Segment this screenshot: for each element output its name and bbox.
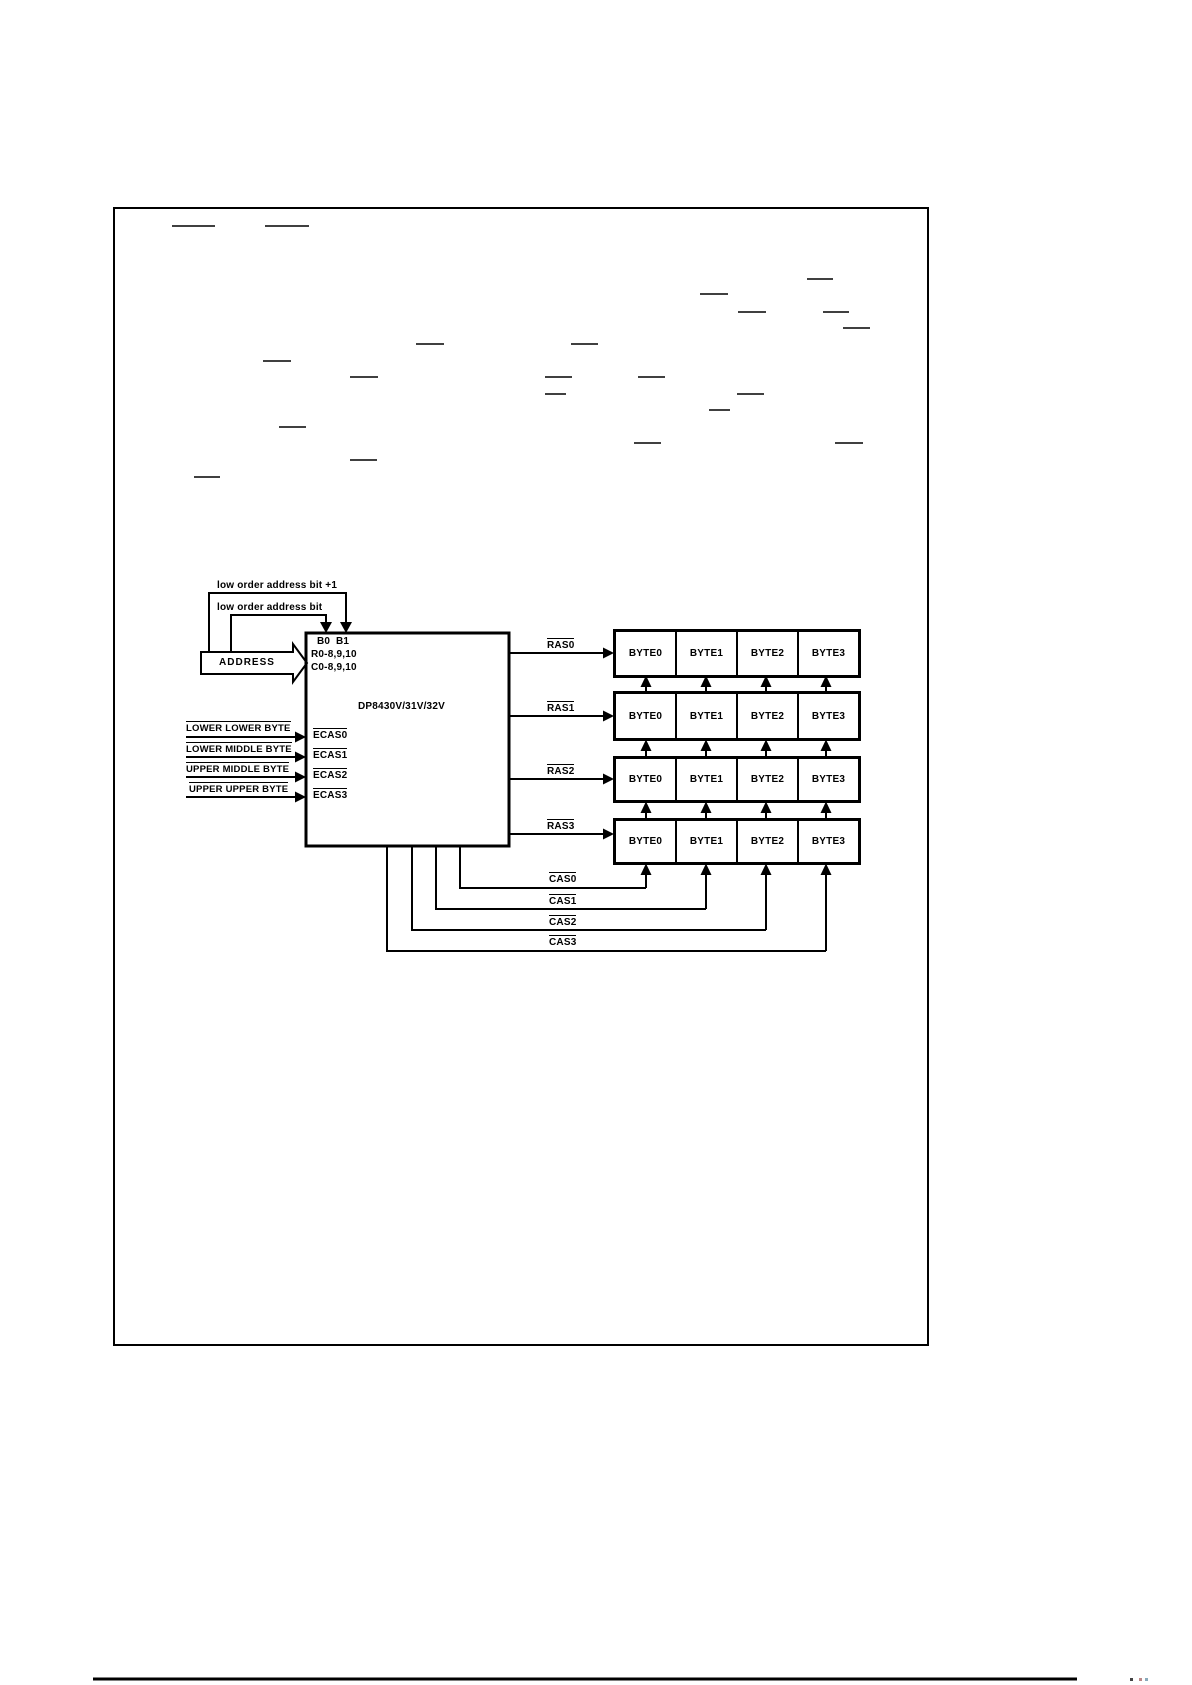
byte-enable-label-0: LOWER LOWER BYTE [186, 721, 291, 734]
byte-enable-label-1: LOWER MIDDLE BYTE [186, 742, 292, 755]
cas1-label: CAS1 [549, 894, 576, 907]
arrowhead-b1 [340, 622, 352, 633]
memory-bank-row-2: BYTE0BYTE1BYTE2BYTE3 [613, 756, 861, 803]
chip-pin-b0: B0 [317, 637, 330, 647]
memory-cell: BYTE1 [675, 694, 736, 738]
memory-cell: BYTE1 [675, 759, 736, 800]
arrowhead-ecas0 [295, 732, 306, 743]
memory-cell: BYTE0 [616, 694, 675, 738]
address-bus-label: ADDRESS [202, 653, 292, 673]
memory-bank-row-0: BYTE0BYTE1BYTE2BYTE3 [613, 629, 861, 678]
chip-row-pins: R0-8,9,10 [311, 650, 357, 660]
chip-pin-ecas2: ECAS2 [313, 768, 347, 781]
address-tap-label: low order address bit [217, 603, 322, 613]
memory-cell: BYTE2 [736, 821, 797, 862]
chip-part-number: DP8430V/31V/32V [358, 702, 445, 712]
memory-cell: BYTE1 [675, 821, 736, 862]
memory-cell: BYTE2 [736, 759, 797, 800]
cas3-label: CAS3 [549, 935, 576, 948]
memory-cell: BYTE3 [797, 759, 858, 800]
chip-pin-ecas3: ECAS3 [313, 788, 347, 801]
memory-cell: BYTE3 [797, 694, 858, 738]
ras0-label: RAS0 [547, 638, 574, 651]
footer-artifact-dots [1130, 1678, 1148, 1681]
arrowhead-ecas3 [295, 792, 306, 803]
cas2-label: CAS2 [549, 915, 576, 928]
memory-cell: BYTE3 [797, 821, 858, 862]
ras2-label: RAS2 [547, 764, 574, 777]
arrowhead-ecas2 [295, 772, 306, 783]
ras-wires [509, 653, 604, 834]
datasheet-page: low order address bit +1 low order addre… [0, 0, 1192, 1685]
memory-cell: BYTE0 [616, 632, 675, 675]
redacted-text-overlines [172, 226, 870, 477]
ras3-label: RAS3 [547, 819, 574, 832]
memory-bank-row-3: BYTE0BYTE1BYTE2BYTE3 [613, 818, 861, 865]
arrowhead-ecas1 [295, 752, 306, 763]
diagram-lines [0, 0, 1192, 1685]
chip-pin-ecas1: ECAS1 [313, 748, 347, 761]
memory-cell: BYTE2 [736, 694, 797, 738]
address-tap-label-plus1: low order address bit +1 [217, 581, 337, 591]
cas0-label: CAS0 [549, 872, 576, 885]
chip-col-pins: C0-8,9,10 [311, 663, 357, 673]
byte-enable-label-2: UPPER MIDDLE BYTE [186, 762, 289, 775]
memory-bank-row-1: BYTE0BYTE1BYTE2BYTE3 [613, 691, 861, 741]
memory-cell: BYTE0 [616, 821, 675, 862]
memory-cell: BYTE2 [736, 632, 797, 675]
arrowhead-b0 [320, 622, 332, 633]
chip-pin-b1: B1 [336, 637, 349, 647]
memory-cell: BYTE1 [675, 632, 736, 675]
byte-enable-label-3: UPPER UPPER BYTE [189, 782, 288, 795]
memory-cell: BYTE0 [616, 759, 675, 800]
chip-pin-ecas0: ECAS0 [313, 728, 347, 741]
ras1-label: RAS1 [547, 701, 574, 714]
memory-cell: BYTE3 [797, 632, 858, 675]
